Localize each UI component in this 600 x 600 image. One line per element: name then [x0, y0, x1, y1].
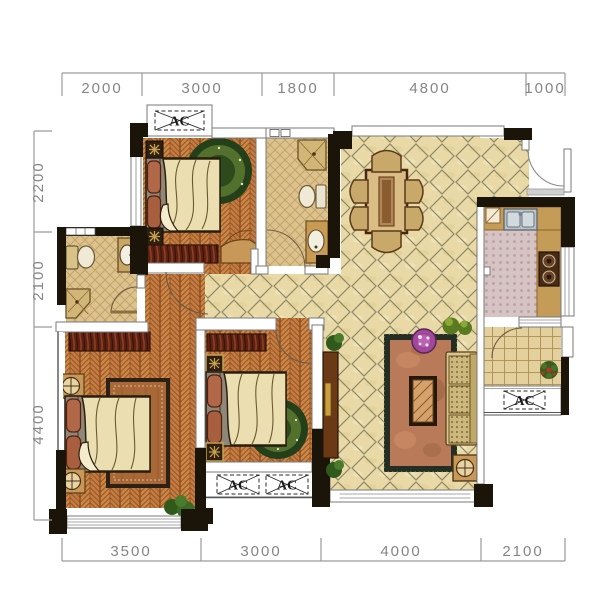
- svg-text:4000: 4000: [380, 543, 421, 560]
- svg-text:2100: 2100: [502, 543, 543, 560]
- svg-text:1800: 1800: [277, 80, 318, 97]
- svg-text:2100: 2100: [30, 259, 47, 300]
- svg-text:AC: AC: [228, 479, 248, 494]
- svg-text:2200: 2200: [30, 161, 47, 202]
- svg-text:2000: 2000: [81, 80, 122, 97]
- svg-text:4800: 4800: [409, 80, 450, 97]
- svg-text:4400: 4400: [30, 403, 47, 444]
- svg-text:1000: 1000: [524, 80, 565, 97]
- svg-text:AC: AC: [169, 115, 189, 130]
- svg-text:3500: 3500: [110, 543, 151, 560]
- svg-text:3000: 3000: [181, 80, 222, 97]
- svg-text:3000: 3000: [240, 543, 281, 560]
- svg-text:AC: AC: [277, 479, 297, 494]
- svg-text:AC: AC: [514, 394, 534, 409]
